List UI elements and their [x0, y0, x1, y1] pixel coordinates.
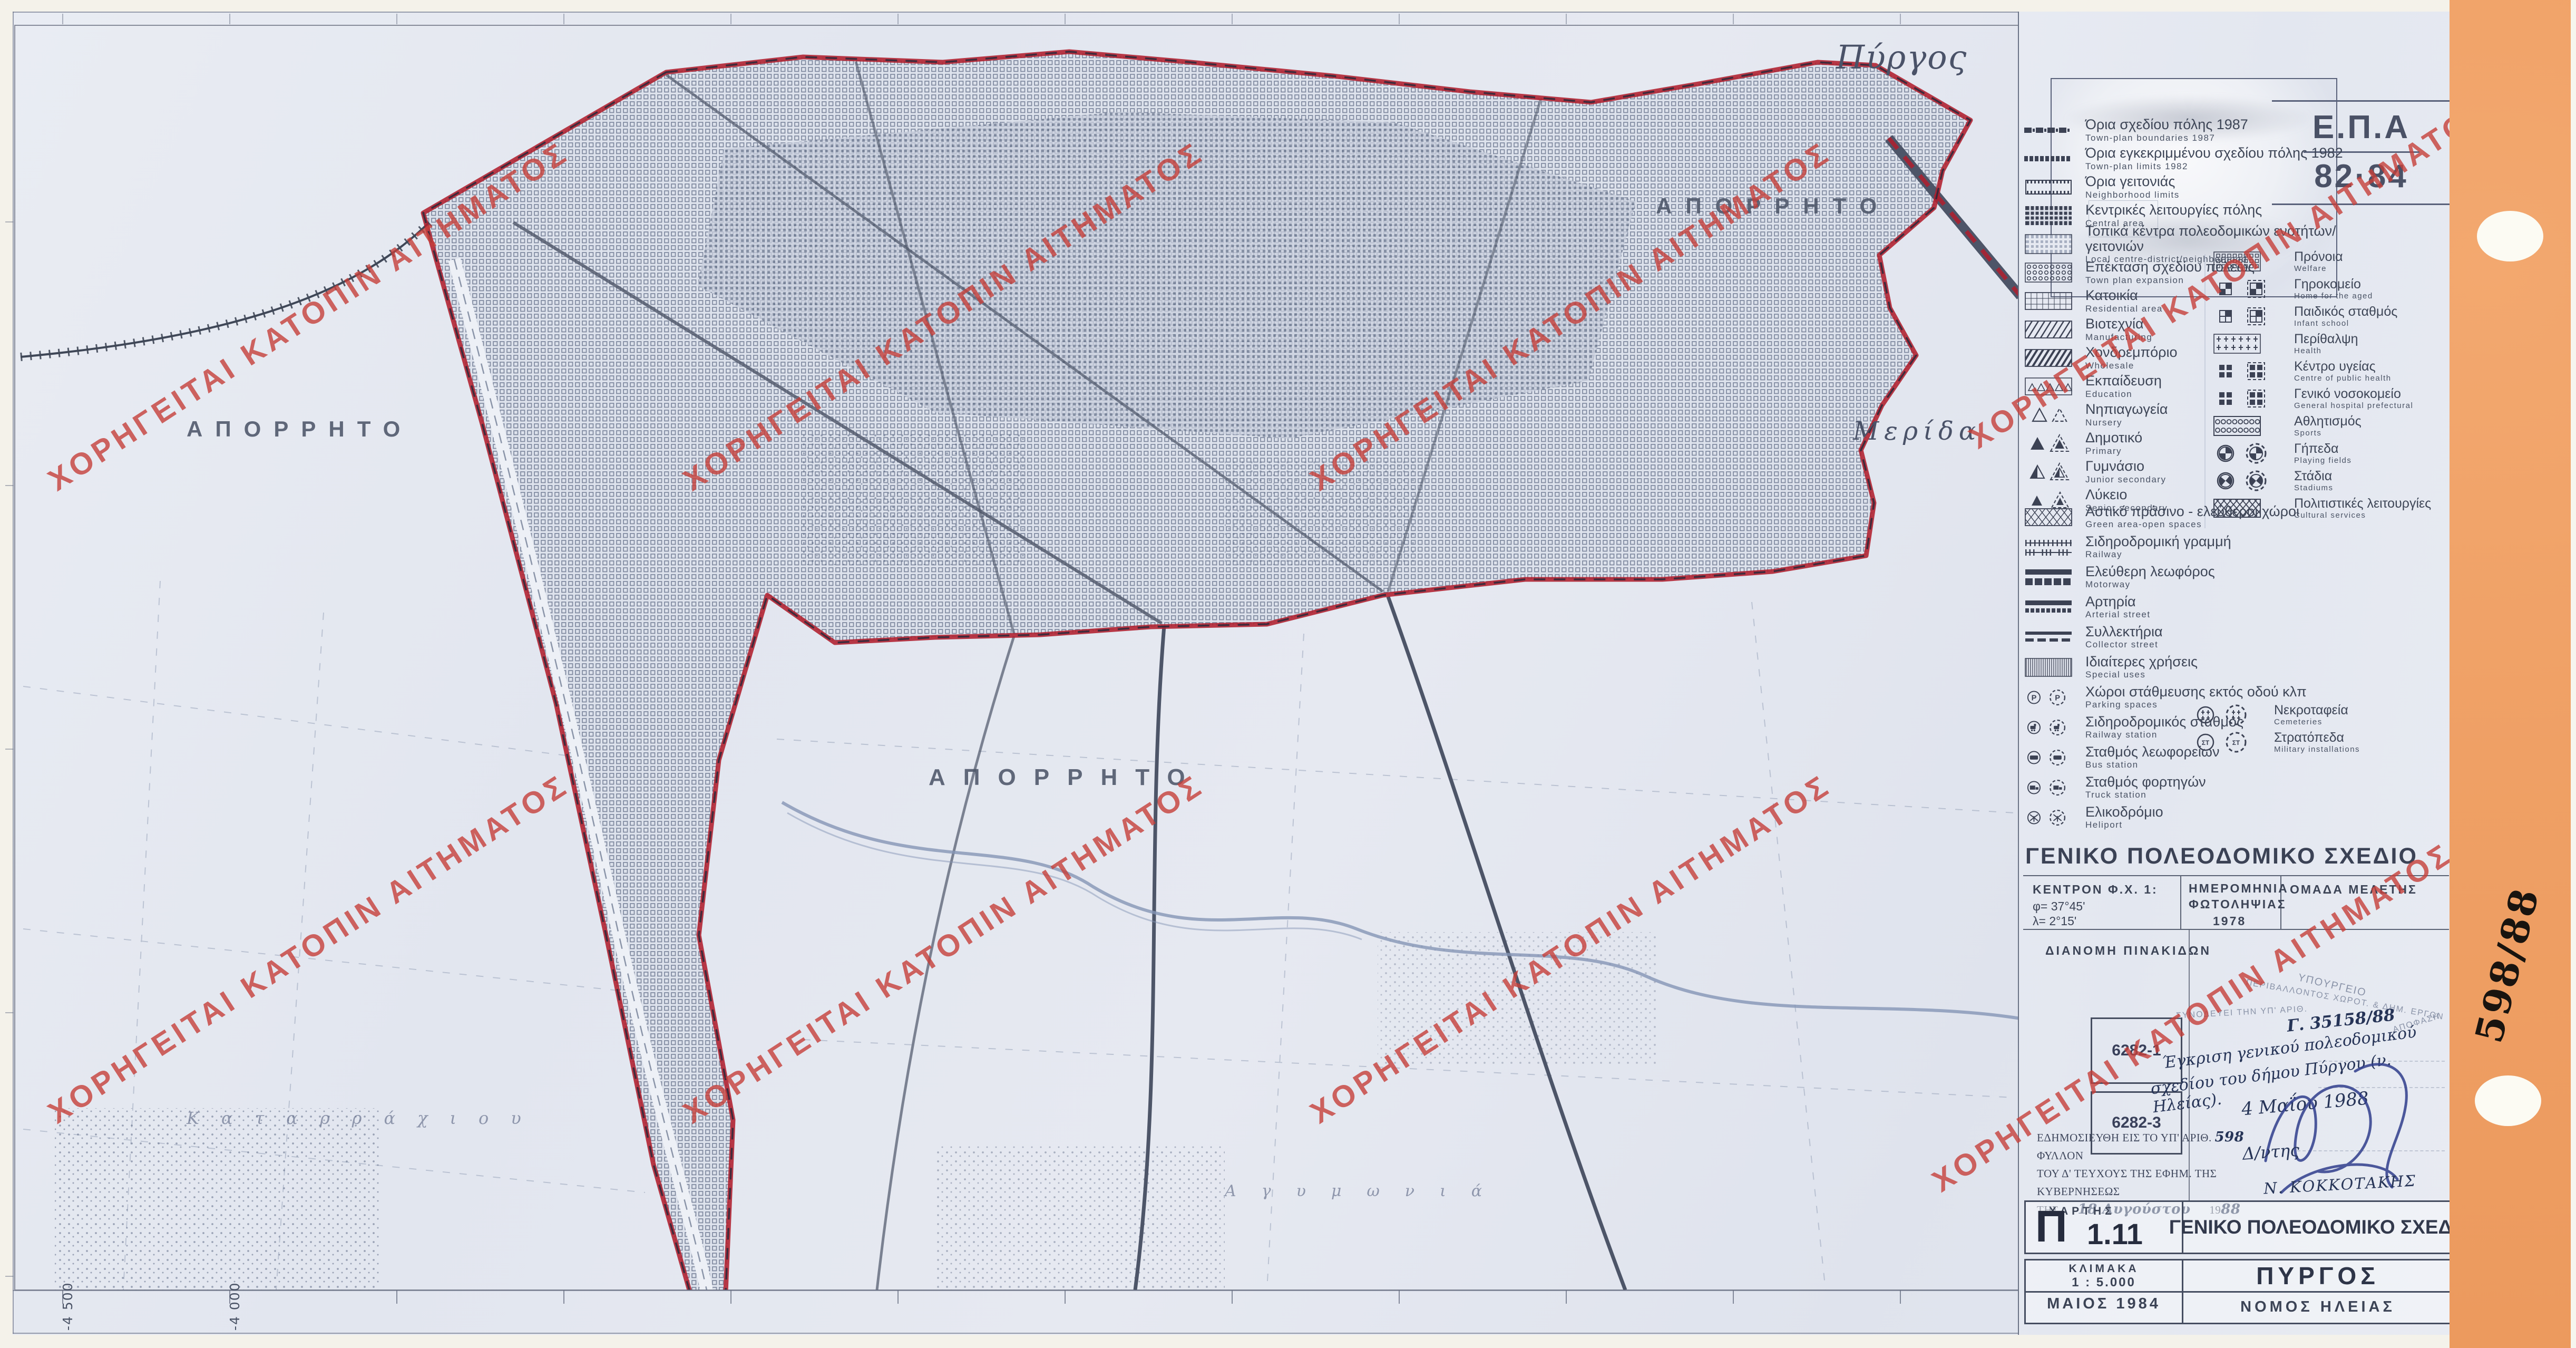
classification-stamp: ΑΠΟΡΡΗΤΟ	[1656, 193, 1890, 219]
title-block-row1: ΧΑΡΤΗΣ Π 1.11 ΓΕΝΙΚΟ ΠΟΛΕΟΔΟΜΙΚΟ ΣΧΕΔΙΟ	[2024, 1200, 2451, 1254]
legend-label-greek: Ιδιαίτερες χρήσεις	[2085, 654, 2198, 669]
legend-label-greek: Γυμνάσιο	[2085, 459, 2166, 473]
legend-label-greek: Νηπιαγωγεία	[2085, 402, 2168, 416]
legend-row-text: ΓυμνάσιοJunior secondary	[2085, 459, 2166, 484]
legend-row-text: Αστικό πράσινο - ελεύθεροι χώροιGreen ar…	[2085, 504, 2299, 530]
legend-label-english: Neighborhood limits	[2085, 190, 2180, 200]
legend-label-greek: Εκπαίδευση	[2085, 373, 2162, 388]
map-labels-layer: ΠύργοςΑΠΟΡΡΗΤΟΑΠΟΡΡΗΤΟΑΠΟΡΡΗΤΟΜερίδαΚατα…	[13, 12, 2021, 1335]
legend-row-text: ΣτρατόπεδαMilitary installations	[2274, 731, 2360, 754]
junior-secondary-icon	[2024, 460, 2077, 483]
military-icon: ΣΤ ΣΤ	[2193, 730, 2266, 754]
legend-label-english: Junior secondary	[2085, 475, 2166, 485]
legend-label-greek: Στάδια	[2294, 469, 2334, 483]
legend-row-text: Σταθμός φορτηγώνTruck station	[2085, 774, 2206, 800]
legend-label-english: Health	[2294, 347, 2358, 356]
legend-row-arterial: ΑρτηρίαArterial street	[2024, 592, 2393, 622]
legend-row-infant-school: Παιδικός σταθμόςInfant school	[2213, 303, 2451, 330]
legend-label-english: Manufacturing	[2085, 333, 2152, 343]
legend-misc-column: ΝεκροταφείαCemeteries ΣΤ ΣΤΣτρατόπεδαMil…	[2193, 701, 2446, 756]
legend-label-english: Special uses	[2085, 670, 2198, 680]
legend-row-text: ΝεκροταφείαCemeteries	[2274, 703, 2348, 727]
pub-line1-suffix: ΦΥΛΛΟΝ	[2037, 1149, 2083, 1162]
gazette-number-handwritten: 598	[2214, 1129, 2244, 1145]
sports-icon	[2213, 414, 2286, 438]
legend-row-text: ΣτάδιαStadiums	[2294, 469, 2334, 493]
city-name: ΠΥΡΓΟΣ	[2182, 1260, 2451, 1291]
wholesale-icon	[2024, 346, 2077, 370]
legend-row-text: ΔημοτικόPrimary	[2085, 430, 2142, 456]
primary-icon	[2024, 432, 2077, 455]
arterial-icon	[2024, 596, 2077, 619]
legend-label-greek: Γηροκομείο	[2294, 277, 2373, 291]
legend-row-railway-line: Σιδηροδρομική γραμμήRailway	[2024, 532, 2393, 562]
legend-row-health: ΠερίθαλψηHealth	[2213, 330, 2451, 357]
legend-label-english: Motorway	[2085, 580, 2215, 590]
local-centre-icon	[2024, 232, 2077, 256]
centre-lambda: λ= 2°15'	[2033, 914, 2076, 928]
legend-label-greek: Γήπεδα	[2294, 442, 2351, 455]
photo-year: 1978	[2213, 914, 2246, 928]
legend-row-text: ΑρτηρίαArterial street	[2085, 594, 2151, 620]
plate-box-1: 6282-1	[2091, 1017, 2182, 1084]
legend-label-greek: Όρια γειτονιάς	[2085, 174, 2180, 189]
boundary-1982-icon	[2024, 147, 2077, 170]
legend-row-green-areas: Αστικό πράσινο - ελεύθεροι χώροιGreen ar…	[2024, 502, 2393, 532]
legend-row-text: Όρια γειτονιάςNeighborhood limits	[2085, 174, 2180, 200]
legend-label-greek: Γενικό νοσοκομείο	[2294, 387, 2413, 401]
legend-row-text: Όρια σχεδίου πόλης 1987Town-plan boundar…	[2085, 117, 2248, 143]
legend-label-english: Stadiums	[2294, 484, 2334, 493]
scanned-map-sheet: { "header": { "epa": "Ε.Π.Α", "period": …	[0, 0, 2576, 1348]
special-uses-icon	[2024, 656, 2077, 679]
legend-row-text: ΚατοικίαResidential area	[2085, 288, 2163, 314]
health-centre-icon	[2213, 359, 2286, 383]
legend-label-english: Green area-open spaces	[2085, 520, 2299, 530]
legend-label-english: Cemeteries	[2274, 718, 2348, 727]
place-name-label: Καταρράχιου	[187, 1108, 543, 1128]
playing-fields-icon	[2213, 441, 2286, 466]
legend-label-english: General hospital prefectural	[2294, 402, 2413, 411]
legend-label-english: Welfare	[2294, 265, 2343, 274]
legend-label-greek: Στρατόπεδα	[2274, 731, 2360, 744]
legend-row-text: ΠερίθαλψηHealth	[2294, 332, 2358, 356]
legend-row-text: ΣυλλεκτήριαCollector street	[2085, 624, 2163, 650]
distribution-area: ΔΙΑΝΟΜΗ ΠΙΝΑΚΙΔΩΝ 6282-1 6282-3 ΥΠΟΥΡΓΕΙ…	[2023, 929, 2449, 1202]
paper-edge	[2571, 0, 2576, 1348]
plate-distribution-label: ΔΙΑΝΟΜΗ ΠΙΝΑΚΙΔΩΝ	[2045, 944, 2211, 958]
legend-label-greek: Αστικό πράσινο - ελεύθεροι χώροι	[2085, 504, 2299, 519]
legend-row-boundary-1982: Όρια εγκεκριμμένου σχεδίου πόλης 1982Tow…	[2024, 144, 2393, 173]
legend-label-english: Nursery	[2085, 418, 2168, 428]
legend-label-english: Town-plan boundaries 1987	[2085, 133, 2248, 143]
legend-label-greek: Πρόνοια	[2294, 250, 2343, 264]
residential-icon	[2024, 289, 2077, 313]
manufacturing-icon	[2024, 318, 2077, 341]
legend-row-collector: ΣυλλεκτήριαCollector street	[2024, 622, 2393, 652]
legend-label-greek: Χώροι στάθμευσης εκτός οδού κλπ	[2085, 684, 2307, 699]
parking-icon: P P	[2024, 685, 2077, 710]
legend-row-text: ΑθλητισμόςSports	[2294, 414, 2362, 438]
legend-row-text: ΓηροκομείοHome for the aged	[2294, 277, 2373, 301]
legend-row-text: ΕκπαίδευσηEducation	[2085, 373, 2162, 399]
title-block-row2: ΚΛΙΜΑΚΑ 1 : 5.000 ΠΥΡΓΟΣ ΜΑΙΟΣ 1984 ΝΟΜΟ…	[2024, 1259, 2451, 1324]
centre-label: ΚΕΝΤΡΟΝ Φ.Χ. 1:	[2033, 882, 2158, 897]
svg-text:ΣΤ: ΣΤ	[2202, 739, 2210, 746]
legend-row-text: ΒιοτεχνίαManufacturing	[2085, 316, 2152, 342]
legend-row-cemeteries: ΝεκροταφείαCemeteries	[2193, 701, 2446, 729]
legend-label-english: Truck station	[2085, 790, 2206, 800]
legend-row-text: Κέντρο υγείαςCentre of public health	[2294, 360, 2392, 383]
legend-label-english: Education	[2085, 390, 2162, 400]
legend-label-english: Arterial street	[2085, 610, 2151, 620]
legend-label-greek: Δημοτικό	[2085, 430, 2142, 445]
punch-hole	[2477, 211, 2543, 261]
scale-label: ΚΛΙΜΑΚΑ	[2026, 1263, 2182, 1275]
svg-text:P: P	[2055, 694, 2060, 702]
photo-date-label2: ΦΩΤΟΛΗΨΙΑΣ	[2189, 897, 2287, 911]
legend-label-english: Town-plan limits 1982	[2085, 162, 2343, 172]
legend-row-text: ΠρόνοιαWelfare	[2294, 250, 2343, 274]
classification-stamp: ΑΠΟΡΡΗΤΟ	[187, 416, 413, 442]
cemeteries-icon	[2193, 703, 2266, 727]
legend-row-text: Ελεύθερη λεωφόροςMotorway	[2085, 564, 2215, 590]
prefecture-name: ΝΟΜΟΣ ΗΛΕΙΑΣ	[2182, 1291, 2451, 1323]
health-icon	[2213, 332, 2286, 355]
legend-row-text: ΕλικοδρόμιοHeliport	[2085, 804, 2163, 830]
legend-label-english: Residential area	[2085, 304, 2163, 314]
central-area-icon	[2024, 204, 2077, 227]
legend-row-text: Γενικό νοσοκομείοGeneral hospital prefec…	[2294, 387, 2413, 411]
aged-home-icon	[2213, 277, 2286, 301]
classification-stamp: ΑΠΟΡΡΗΤΟ	[929, 764, 1203, 791]
place-name-label: Πύργος	[1836, 38, 1967, 76]
town-expansion-icon	[2024, 261, 2077, 284]
legend-label-greek: Όρια σχεδίου πόλης 1987	[2085, 117, 2248, 132]
legend-row-text: Όρια εγκεκριμμένου σχεδίου πόλης 1982Tow…	[2085, 146, 2343, 171]
bus-station-icon	[2024, 745, 2077, 770]
map-code-number: 1.11	[2087, 1217, 2143, 1251]
legend-row-heliport: ΕλικοδρόμιοHeliport	[2024, 802, 2393, 832]
legend-transport-column: Αστικό πράσινο - ελεύθεροι χώροιGreen ar…	[2024, 502, 2393, 832]
legend-label-english: Home for the aged	[2294, 292, 2373, 301]
legend-row-truck-station: Σταθμός φορτηγώνTruck station	[2024, 772, 2393, 802]
photo-date-label1: ΗΜΕΡΟΜΗΝΙΑ	[2189, 881, 2289, 896]
green-areas-icon	[2024, 506, 2077, 529]
legend-label-english: Centre of public health	[2294, 374, 2392, 383]
scale-value: 1 : 5.000	[2026, 1275, 2182, 1290]
legend-label-greek: Ελικοδρόμιο	[2085, 804, 2163, 819]
legend-right-column: ΠρόνοιαWelfare ΓηροκομείοHome for the ag…	[2213, 248, 2451, 522]
legend-label-english: Playing fields	[2294, 457, 2351, 466]
legend-row-motorway: Ελεύθερη λεωφόροςMotorway	[2024, 562, 2393, 592]
legend-row-special-uses: Ιδιαίτερες χρήσειςSpecial uses	[2024, 652, 2393, 682]
legend-label-english: Heliport	[2085, 820, 2163, 830]
plan-info-table: ΚΕΝΤΡΟΝ Φ.Χ. 1: φ= 37°45' λ= 2°15' ΗΜΕΡΟ…	[2023, 875, 2449, 930]
legend-row-text: Σιδηροδρομική γραμμήRailway	[2085, 534, 2231, 560]
education-icon	[2024, 375, 2077, 398]
legend-label-english: Military installations	[2274, 745, 2360, 754]
neighborhood-limits-icon	[2024, 176, 2077, 199]
centre-phi: φ= 37°45'	[2033, 899, 2085, 914]
infant-school-icon	[2213, 304, 2286, 328]
railway-line-icon	[2024, 536, 2077, 559]
legend-label-greek: Κατοικία	[2085, 288, 2163, 303]
legend-label-greek: Ελεύθερη λεωφόρος	[2085, 564, 2215, 579]
legend-label-greek: Συλλεκτήρια	[2085, 624, 2163, 639]
legend-label-english: Infant school	[2294, 319, 2397, 328]
legend-label-english: Collector street	[2085, 640, 2163, 650]
legend-panel: Ε.Π.Α 82·84 Όρια σχεδίου πόλης 1987Town-…	[2018, 12, 2451, 1335]
nursery-icon	[2024, 403, 2077, 426]
legend-row-hospital: Γενικό νοσοκομείοGeneral hospital prefec…	[2213, 385, 2451, 412]
legend-row-sports: ΑθλητισμόςSports	[2213, 412, 2451, 440]
plan-heading: ΓΕΝΙΚΟ ΠΟΛΕΟΔΟΜΙΚΟ ΣΧΕΔΙΟ	[2025, 843, 2450, 869]
legend-row-playing-fields: ΓήπεδαPlaying fields	[2213, 440, 2451, 467]
title-block-title: ΓΕΝΙΚΟ ΠΟΛΕΟΔΟΜΙΚΟ ΣΧΕΔΙΟ	[2189, 1202, 2451, 1253]
legend-label-greek: Νεκροταφεία	[2274, 703, 2348, 717]
hospital-icon	[2213, 386, 2286, 411]
legend-row-text: ΧονδρεμπόριοWholesale	[2085, 345, 2178, 371]
svg-text:P: P	[2032, 694, 2037, 702]
legend-row-text: Παιδικός σταθμόςInfant school	[2294, 305, 2397, 328]
legend-row-aged-home: ΓηροκομείοHome for the aged	[2213, 275, 2451, 303]
legend-row-stadiums: ΣτάδιαStadiums	[2213, 467, 2451, 494]
study-team-label: ΟΜΑΔΑ ΜΕΛΕΤΗΣ	[2290, 882, 2417, 897]
place-name-label: Αγυμωνιά	[1225, 1182, 1507, 1200]
legend-label-english: Railway	[2085, 550, 2231, 560]
heliport-icon	[2024, 806, 2077, 830]
legend-row-health-centre: Κέντρο υγείαςCentre of public health	[2213, 357, 2451, 385]
legend-label-greek: Λύκειο	[2085, 487, 2168, 502]
legend-row-welfare: ΠρόνοιαWelfare	[2213, 248, 2451, 275]
punch-hole	[2475, 1075, 2541, 1126]
legend-label-greek: Σιδηροδρομική γραμμή	[2085, 534, 2231, 549]
legend-label-greek: Κέντρο υγείας	[2294, 360, 2392, 373]
legend-label-english: Wholesale	[2085, 361, 2178, 371]
rail-station-icon	[2024, 715, 2077, 740]
legend-label-english: Sports	[2294, 429, 2362, 438]
legend-label-greek: Περίθαλψη	[2294, 332, 2358, 346]
legend-label-greek: Αθλητισμός	[2294, 414, 2362, 428]
map-code-letter: Π	[2035, 1204, 2067, 1248]
legend-label-greek: Όρια εγκεκριμμένου σχεδίου πόλης 1982	[2085, 146, 2343, 160]
legend-label-greek: Κεντρικές λειτουργίες πόλης	[2085, 202, 2262, 217]
legend-row-neighborhood-limits: Όρια γειτονιάςNeighborhood limits	[2024, 173, 2393, 201]
legend-row-boundary-1987: Όρια σχεδίου πόλης 1987Town-plan boundar…	[2024, 116, 2393, 144]
svg-text:ΣΤ: ΣΤ	[2232, 739, 2240, 746]
legend-row-military: ΣΤ ΣΤΣτρατόπεδαMilitary installations	[2193, 729, 2446, 756]
legend-label-english: Primary	[2085, 447, 2142, 457]
legend-label-greek: Αρτηρία	[2085, 594, 2151, 609]
legend-row-text: ΓήπεδαPlaying fields	[2294, 442, 2351, 466]
welfare-icon	[2213, 250, 2286, 273]
legend-label-greek: Σταθμός φορτηγών	[2085, 774, 2206, 789]
legend-label-greek: Βιοτεχνία	[2085, 316, 2152, 331]
boundary-1987-icon	[2024, 119, 2077, 142]
collector-icon	[2024, 626, 2077, 649]
legend-row-text: ΝηπιαγωγείαNursery	[2085, 402, 2168, 428]
legend-column-divider	[2204, 254, 2206, 528]
legend-label-greek: Χονδρεμπόριο	[2085, 345, 2178, 360]
place-name-label: Μερίδα	[1853, 416, 1981, 446]
legend-label-greek: Παιδικός σταθμός	[2294, 305, 2397, 318]
sheet-date: ΜΑΙΟΣ 1984	[2026, 1295, 2182, 1313]
stadiums-icon	[2213, 469, 2286, 493]
truck-station-icon	[2024, 775, 2077, 800]
motorway-icon	[2024, 566, 2077, 589]
pub-line1-printed: ΕΔΗΜΟΣΙΕΥΘΗ ΕΙΣ ΤΟ ΥΠ' ΑΡΙΘ.	[2037, 1131, 2212, 1144]
legend-row-text: Ιδιαίτερες χρήσειςSpecial uses	[2085, 654, 2198, 680]
pub-line2: ΤΟΥ Δ' ΤΕΥΧΟΥΣ ΤΗΣ ΕΦΗΜ. ΤΗΣ ΚΥΒΕΡΝΗΣΕΩΣ	[2037, 1165, 2258, 1200]
legend-label-english: Bus station	[2085, 760, 2220, 770]
binder-strip	[2450, 0, 2571, 1348]
